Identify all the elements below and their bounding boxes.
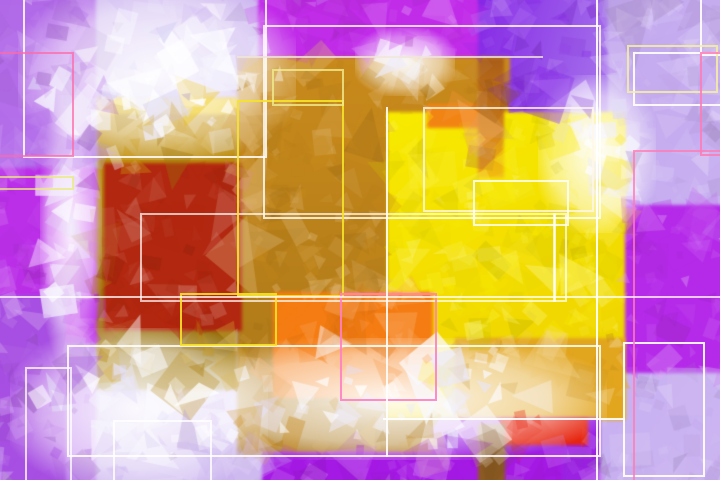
accent-white-vline: [386, 107, 388, 457]
accent-white-hline: [0, 296, 720, 298]
outline-pink-rect: [340, 293, 437, 401]
accent-cream-hline: [237, 56, 543, 58]
abstract-artwork: [0, 0, 720, 480]
accent-white-vline: [596, 0, 598, 480]
outline-white-rect: [140, 213, 556, 302]
outline-yellow-rect: [180, 293, 277, 346]
outline-yellow-rect: [272, 69, 344, 106]
outline-yellow-rect: [0, 176, 74, 190]
outline-pink-rect: [0, 52, 74, 157]
accent-white-hline: [383, 418, 625, 420]
outline-white-rect: [113, 420, 212, 480]
outline-white-rect: [25, 367, 72, 480]
outline-pink-rect: [633, 150, 720, 480]
outline-yellow-rect: [237, 100, 344, 297]
outline-pink-rect: [700, 52, 720, 156]
outline-white-rect: [553, 213, 567, 302]
outline-white-rect: [473, 180, 569, 226]
